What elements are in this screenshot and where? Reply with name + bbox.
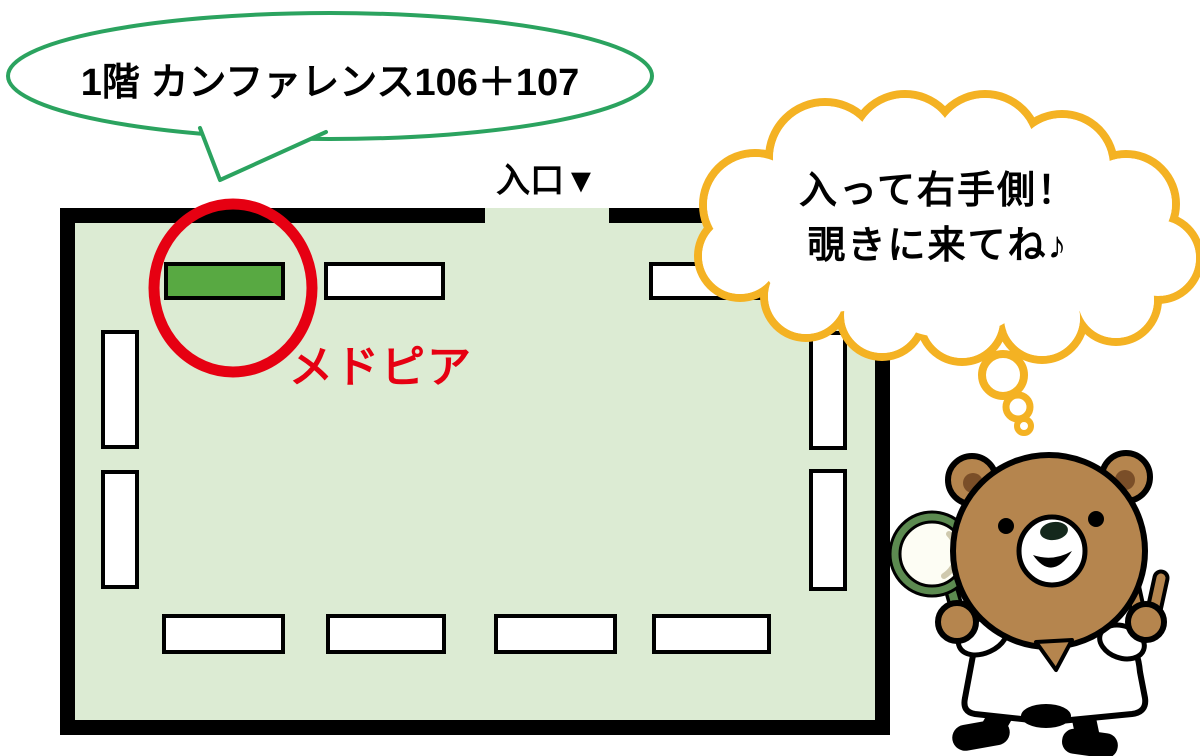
medpeer-label: メドピア	[289, 343, 473, 392]
medpeer-booth	[166, 264, 283, 298]
booth-10	[654, 616, 769, 652]
cloud-text-line1: 入って右手側！	[799, 170, 1077, 212]
booth-4	[103, 472, 137, 587]
wall-bottom	[60, 720, 890, 735]
booth-7	[164, 616, 283, 652]
bear-mascot	[895, 453, 1164, 756]
title-bubble-label: 1階 カンファレンス106＋107	[81, 62, 580, 104]
wall-left	[60, 208, 75, 735]
booth-6	[811, 471, 845, 589]
booth-1	[326, 264, 443, 298]
booth-5	[811, 333, 845, 448]
title-bubble-tail	[200, 128, 326, 180]
bear-left-shoe	[950, 717, 1012, 753]
title-speech-bubble: 1階 カンファレンス106＋107	[8, 13, 652, 180]
bear-right-shoe	[1060, 727, 1119, 756]
booth-3	[103, 332, 137, 447]
booth-8	[328, 616, 444, 652]
trail-circle-large	[982, 354, 1024, 396]
trail-circle-medium	[1006, 395, 1030, 419]
booth-9	[496, 616, 615, 652]
trail-circle-small	[1017, 419, 1031, 433]
entrance-label: 入口▼	[496, 162, 598, 200]
cloud-text-line2: 覗きに来てね♪	[807, 225, 1068, 267]
bear-left-eye	[998, 518, 1014, 534]
thought-cloud-trail	[982, 354, 1031, 433]
floor-map-infographic: 1階 カンファレンス106＋107 入口▼ メドピア 入って右手側！ 覗きに来て…	[0, 0, 1200, 756]
bear-right-eye	[1088, 511, 1104, 527]
bear-coat-gap	[1021, 704, 1071, 728]
